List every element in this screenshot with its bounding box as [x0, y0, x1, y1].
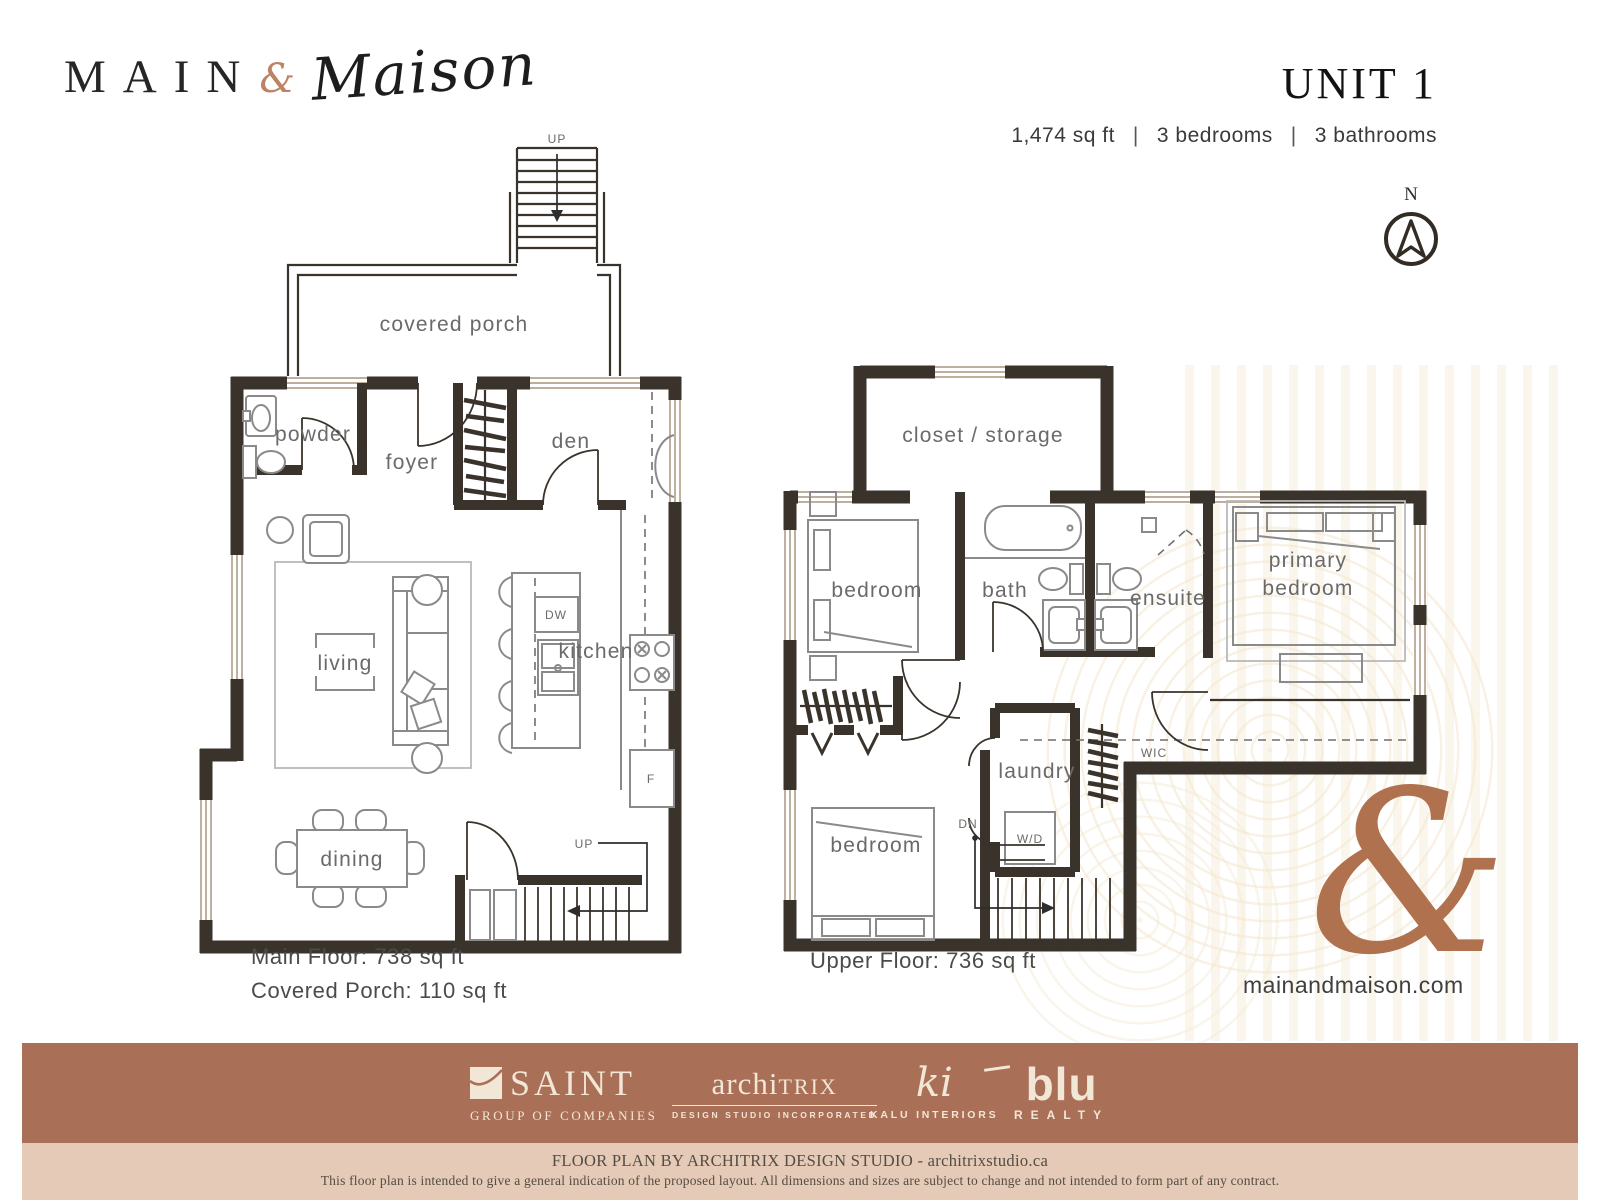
room-label-living: living — [317, 652, 372, 675]
spec-bedrooms: 3 bedrooms — [1157, 124, 1273, 147]
fridge-label: F — [647, 772, 655, 786]
hall-closet — [800, 689, 892, 753]
kalu-interiors-logo: ki KALU INTERIORS — [870, 1065, 998, 1121]
bedroom-front-door — [902, 660, 960, 718]
room-label-powder: powder — [275, 423, 351, 446]
ensuite-shower — [1142, 518, 1204, 555]
brand-ampersand: & — [259, 56, 295, 102]
den-door — [543, 450, 598, 505]
spec-separator: | — [1291, 124, 1297, 147]
saint-logo: SAINT GROUP OF COMPANIES — [470, 1062, 657, 1124]
blu-name: blu — [1014, 1064, 1109, 1105]
kalu-monogram-text: ki — [916, 1060, 953, 1106]
saint-tagline: GROUP OF COMPANIES — [470, 1108, 657, 1124]
room-label-bath: bath — [982, 579, 1028, 602]
covered-porch-area-label: Covered Porch: 110 sq ft — [251, 978, 507, 1004]
floor-plan-sheet: MAIN & Maison UNIT 1 1,474 sq ft|3 bedro… — [0, 0, 1600, 1200]
bath-vanity — [1043, 600, 1085, 650]
upper-interior-walls — [790, 492, 1208, 945]
footer-disclaimer-band: FLOOR PLAN BY ARCHITRIX DESIGN STUDIO - … — [22, 1143, 1578, 1200]
kitchen-island — [499, 573, 580, 753]
north-compass: N — [1381, 184, 1441, 273]
primary-door — [1152, 692, 1208, 750]
floor-plan-credit: FLOOR PLAN BY ARCHITRIX DESIGN STUDIO - … — [22, 1151, 1578, 1171]
room-label-closet-storage: closet / storage — [902, 424, 1064, 447]
spec-sqft: 1,474 sq ft — [1011, 124, 1115, 147]
up-arrow-exterior — [551, 154, 563, 222]
brand-logo: MAIN & Maison — [64, 38, 538, 106]
powder-sink — [243, 396, 276, 436]
room-label-laundry: laundry — [998, 760, 1075, 783]
spec-separator: | — [1133, 124, 1139, 147]
kalu-monogram-bar — [984, 1065, 1010, 1071]
website-url: mainandmaison.com — [1243, 972, 1464, 999]
bedroom-rear-furniture — [812, 808, 934, 940]
up-label-exterior: UP — [548, 132, 567, 146]
spec-bathrooms: 3 bathrooms — [1315, 124, 1437, 147]
room-label-foyer: foyer — [386, 451, 439, 474]
architrix-name-lower: archi — [712, 1066, 779, 1101]
up-label-stairs: UP — [575, 837, 594, 851]
down-label: DN — [958, 817, 977, 831]
coat-closet — [464, 390, 506, 501]
kalu-tagline: KALU INTERIORS — [870, 1109, 998, 1121]
sofa — [393, 575, 448, 773]
wic-label: WIC — [1141, 746, 1167, 760]
saint-icon — [470, 1067, 502, 1099]
armchair — [303, 515, 349, 563]
architrix-logo: archiTRIX DESIGN STUDIO INCORPORATED — [672, 1066, 877, 1120]
unit-specs: 1,474 sq ft|3 bedrooms|3 bathrooms — [1011, 124, 1437, 148]
room-label-ensuite: ensuite — [1130, 587, 1206, 610]
room-label-den: den — [552, 430, 591, 453]
saint-name: SAINT — [510, 1062, 636, 1104]
disclaimer-text: This floor plan is intended to give a ge… — [22, 1173, 1578, 1189]
main-floor-plan: UP covered porch — [190, 130, 690, 965]
ampersand-watermark: & — [1308, 762, 1508, 987]
dishwasher-label: DW — [545, 608, 567, 622]
compass-north-label: N — [1381, 184, 1441, 206]
main-floor-area-label: Main Floor: 738 sq ft — [251, 944, 464, 970]
room-label-bedroom-rear: bedroom — [830, 834, 921, 857]
side-table-round — [267, 517, 293, 543]
bathtub — [965, 506, 1085, 558]
room-label-bedroom-front: bedroom — [831, 579, 922, 602]
unit-title: UNIT 1 — [1282, 58, 1437, 109]
bath-door — [993, 602, 1043, 652]
upper-floor-area-label: Upper Floor: 736 sq ft — [810, 948, 1036, 974]
kalu-monogram: ki — [870, 1065, 998, 1101]
room-label-dining: dining — [320, 848, 383, 871]
architrix-tagline: DESIGN STUDIO INCORPORATED — [672, 1110, 877, 1120]
room-label-primary-2: bedroom — [1262, 577, 1353, 600]
compass-icon — [1382, 210, 1440, 268]
architrix-name-upper: TRIX — [778, 1074, 837, 1099]
bath-toilet — [1039, 564, 1083, 594]
room-label-kitchen: kitchen — [559, 640, 634, 663]
washer-dryer-label: W/D — [1017, 832, 1043, 846]
blu-tagline: REALTY — [1014, 1108, 1109, 1122]
wic-closet — [1088, 724, 1118, 808]
brand-main-text: MAIN — [64, 50, 257, 104]
footer-partner-band: SAINT GROUP OF COMPANIES archiTRIX DESIG… — [22, 1043, 1578, 1143]
stove — [630, 635, 674, 690]
stair-door — [467, 822, 518, 880]
brand-maison-script: Maison — [309, 30, 540, 114]
room-label-covered-porch: covered porch — [380, 313, 529, 336]
blu-realty-logo: blu REALTY — [1014, 1064, 1109, 1122]
stairs-up — [470, 887, 629, 942]
room-label-primary-1: primary — [1269, 549, 1347, 572]
